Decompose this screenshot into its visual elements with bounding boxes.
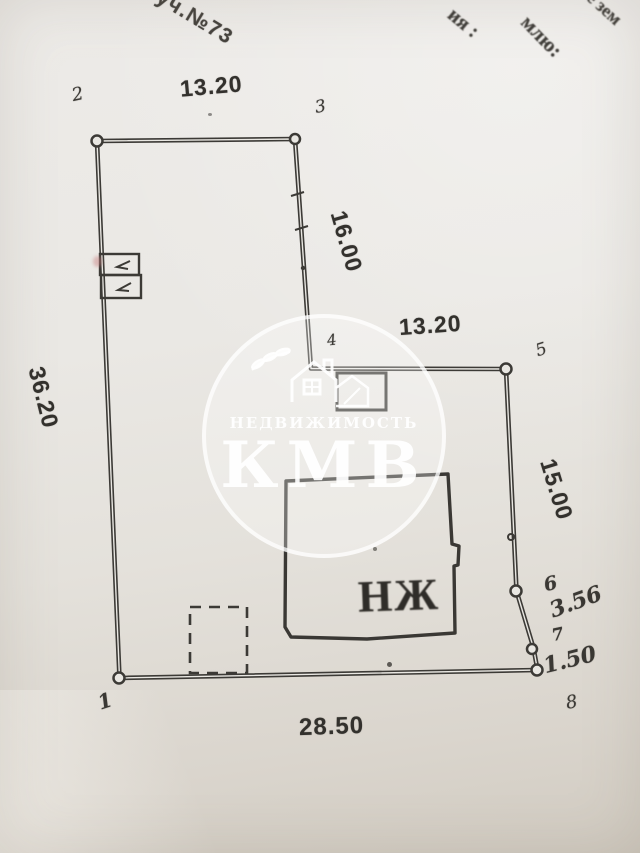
parcel-boundary — [97, 139, 538, 678]
scanned-plan-page: НЕДВИЖИМОСТЬ КМВ уч.№73 ия : млю: е зем … — [0, 0, 640, 853]
point-label-4: 4 — [326, 330, 338, 349]
vertex-7 — [527, 644, 537, 654]
vertex-circles — [92, 134, 543, 684]
gate-arrow-icon — [117, 261, 130, 269]
vertex-3 — [290, 134, 300, 144]
vertex-1 — [114, 673, 125, 684]
dashed-structure-outline — [190, 607, 247, 673]
dim-mid-13-20: 13.20 — [398, 310, 462, 341]
vertex-8 — [532, 665, 543, 676]
gate-arrow-icon — [118, 283, 131, 291]
dim-bottom-28-50: 28.50 — [299, 712, 365, 742]
fence-nub — [301, 266, 305, 270]
parcel-boundary-core — [97, 139, 538, 678]
gate-symbol — [100, 254, 141, 298]
vertex-5 — [501, 364, 512, 375]
building-label: НЖ — [357, 569, 440, 623]
dim-top-13-20: 13.20 — [179, 70, 244, 102]
vertex-6 — [511, 586, 522, 597]
fence-nub-right — [508, 534, 514, 540]
vertex-2 — [92, 136, 103, 147]
annex-square-outline — [337, 373, 386, 410]
